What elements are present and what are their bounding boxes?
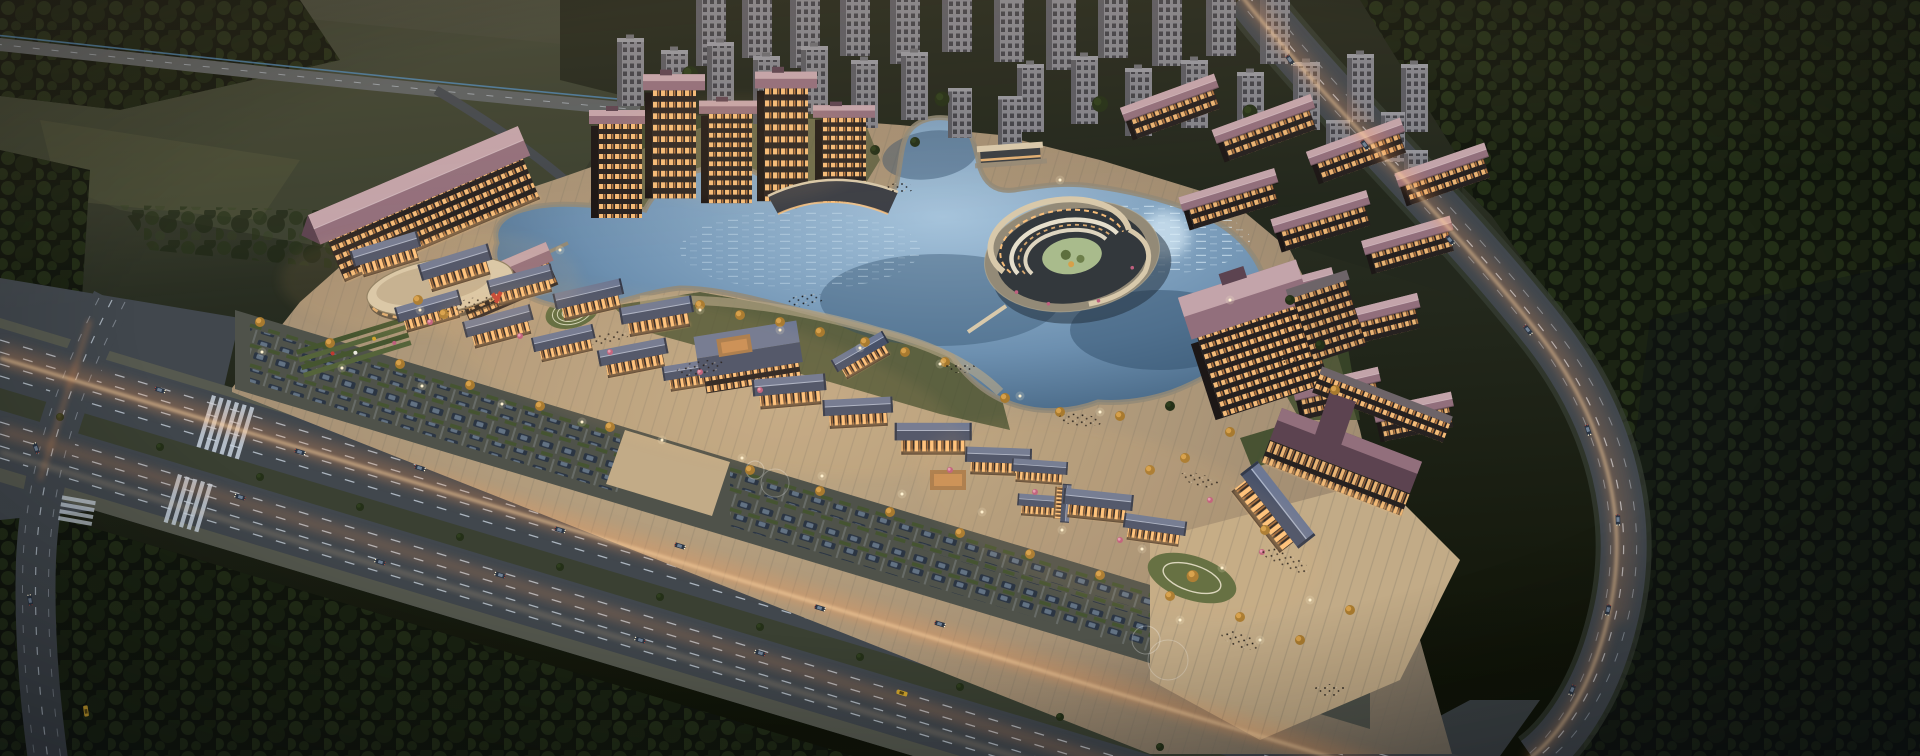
atmosphere — [0, 0, 1920, 756]
rendering-canvas — [0, 0, 1920, 756]
aerial-rendering — [0, 0, 1920, 756]
vignette — [0, 0, 1920, 756]
